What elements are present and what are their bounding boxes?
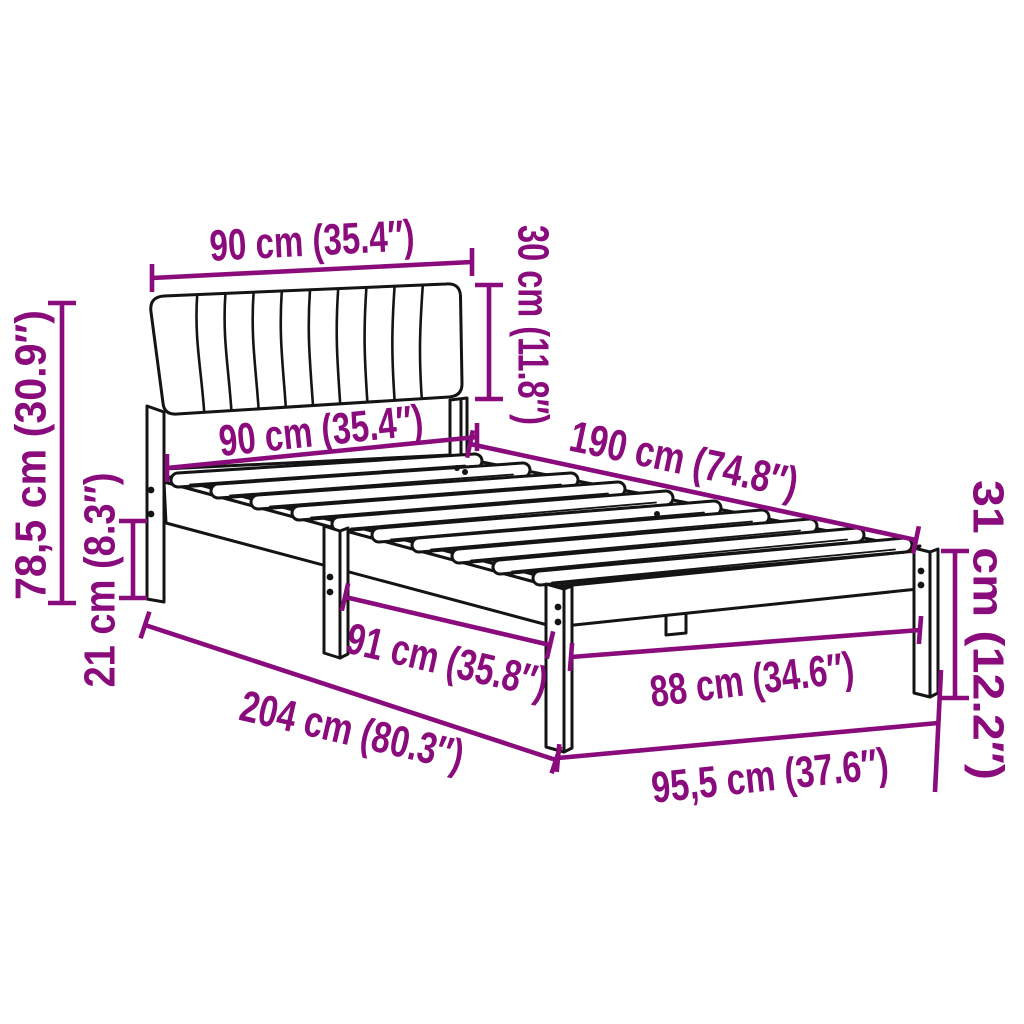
dimension-label-leg-spacing: 91 cm (35.8″) — [342, 614, 553, 708]
dimension-label-headboard-height: 30 cm (11.8″) — [509, 225, 558, 425]
screw-dot — [327, 574, 334, 581]
screw-dot — [918, 568, 925, 575]
headboard-post-right — [450, 398, 467, 461]
dimension-label-total-height: 78,5 cm (30.9″) — [7, 310, 56, 600]
screw-dot — [327, 589, 334, 596]
diagram-canvas: 90 cm (35.4″) 30 cm (11.8″) 78,5 cm (30.… — [0, 0, 1024, 1024]
screw-dot — [555, 619, 562, 626]
screw-dot — [148, 511, 155, 518]
headboard-post-left — [147, 406, 164, 602]
headboard-cushion — [151, 284, 462, 414]
leg-back-right — [914, 548, 938, 697]
dimension-label-frame-width-foot: 88 cm (34.6″) — [647, 643, 856, 717]
dimension-label-leg-height: 21 cm (8.3″) — [76, 473, 125, 688]
screw-dot — [148, 487, 155, 494]
dimension-label-total-length: 204 cm (80.3″) — [235, 681, 468, 780]
screw-dot — [555, 604, 562, 611]
screw-dot — [454, 465, 460, 471]
dimension-label-headboard-width: 90 cm (35.4″) — [208, 211, 415, 271]
screw-dot — [462, 469, 468, 475]
dimension-line-headboard-height — [475, 285, 503, 399]
dimension-label-frame-height-foot: 31 cm (12.2″) — [964, 480, 1013, 780]
dimension-label-total-width: 95,5 cm (37.6″) — [649, 739, 891, 813]
bed-frame-diagram: 90 cm (35.4″) 30 cm (11.8″) 78,5 cm (30.… — [0, 0, 1024, 1024]
screw-dot — [918, 582, 925, 589]
screw-dot — [654, 511, 660, 517]
